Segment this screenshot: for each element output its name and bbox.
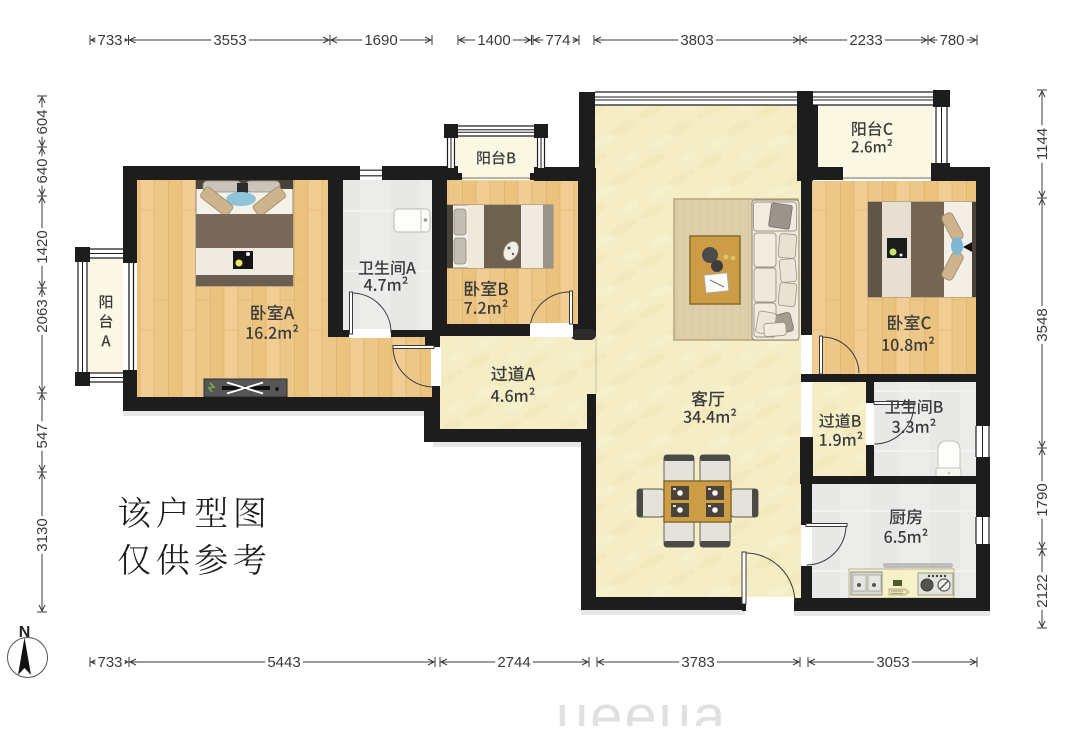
svg-text:ueeua: ueeua: [556, 684, 727, 726]
svg-text:2233: 2233: [849, 32, 882, 49]
svg-text:1690: 1690: [364, 32, 397, 49]
svg-text:640: 640: [34, 158, 51, 183]
svg-text:5443: 5443: [267, 654, 300, 671]
svg-text:1400: 1400: [477, 32, 510, 49]
svg-text:3548: 3548: [1034, 308, 1051, 341]
svg-text:1144: 1144: [1034, 128, 1051, 160]
svg-text:3783: 3783: [681, 654, 714, 671]
svg-text:2122: 2122: [1034, 574, 1051, 607]
svg-text:1420: 1420: [34, 230, 51, 263]
svg-text:3130: 3130: [34, 518, 51, 551]
svg-text:2063: 2063: [34, 299, 51, 332]
svg-text:3053: 3053: [876, 654, 909, 671]
svg-text:2744: 2744: [497, 654, 530, 671]
svg-text:547: 547: [34, 423, 51, 448]
svg-text:733: 733: [97, 32, 122, 49]
svg-text:774: 774: [545, 32, 570, 49]
svg-text:733: 733: [97, 654, 122, 671]
svg-text:3553: 3553: [213, 32, 246, 49]
svg-text:604: 604: [34, 109, 51, 134]
svg-text:3803: 3803: [680, 32, 713, 49]
svg-text:780: 780: [939, 32, 964, 49]
svg-text:1790: 1790: [1034, 483, 1051, 516]
